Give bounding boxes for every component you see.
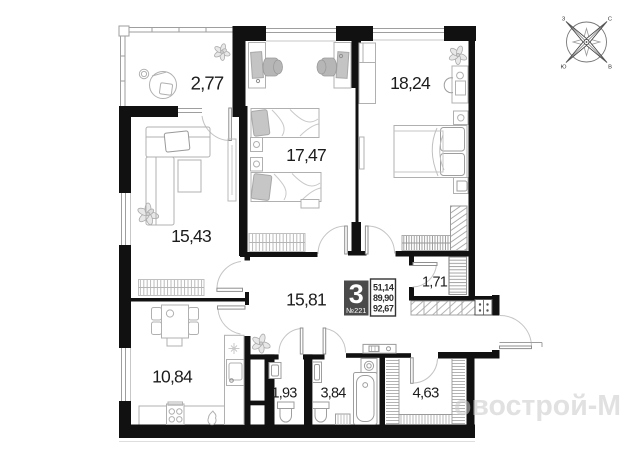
- svg-text:овострой-М: овострой-М: [454, 390, 621, 422]
- svg-text:№221: №221: [346, 306, 366, 315]
- svg-text:92,67: 92,67: [373, 304, 394, 314]
- svg-text:3,84: 3,84: [320, 386, 346, 402]
- svg-text:Ю: Ю: [561, 65, 567, 71]
- svg-text:89,90: 89,90: [373, 293, 394, 303]
- svg-text:3: 3: [349, 279, 364, 309]
- svg-text:1,71: 1,71: [422, 275, 448, 291]
- svg-text:В: В: [608, 65, 612, 71]
- svg-text:2,77: 2,77: [191, 73, 224, 94]
- svg-text:1,93: 1,93: [271, 386, 297, 402]
- svg-text:17,47: 17,47: [286, 145, 326, 165]
- svg-text:4,63: 4,63: [413, 385, 439, 402]
- svg-text:18,24: 18,24: [390, 73, 431, 93]
- svg-text:15,81: 15,81: [286, 290, 326, 310]
- svg-text:З: З: [562, 17, 566, 23]
- svg-text:51,14: 51,14: [373, 283, 394, 293]
- svg-text:15,43: 15,43: [171, 226, 211, 246]
- svg-text:С: С: [608, 17, 612, 23]
- svg-text:10,84: 10,84: [152, 367, 193, 387]
